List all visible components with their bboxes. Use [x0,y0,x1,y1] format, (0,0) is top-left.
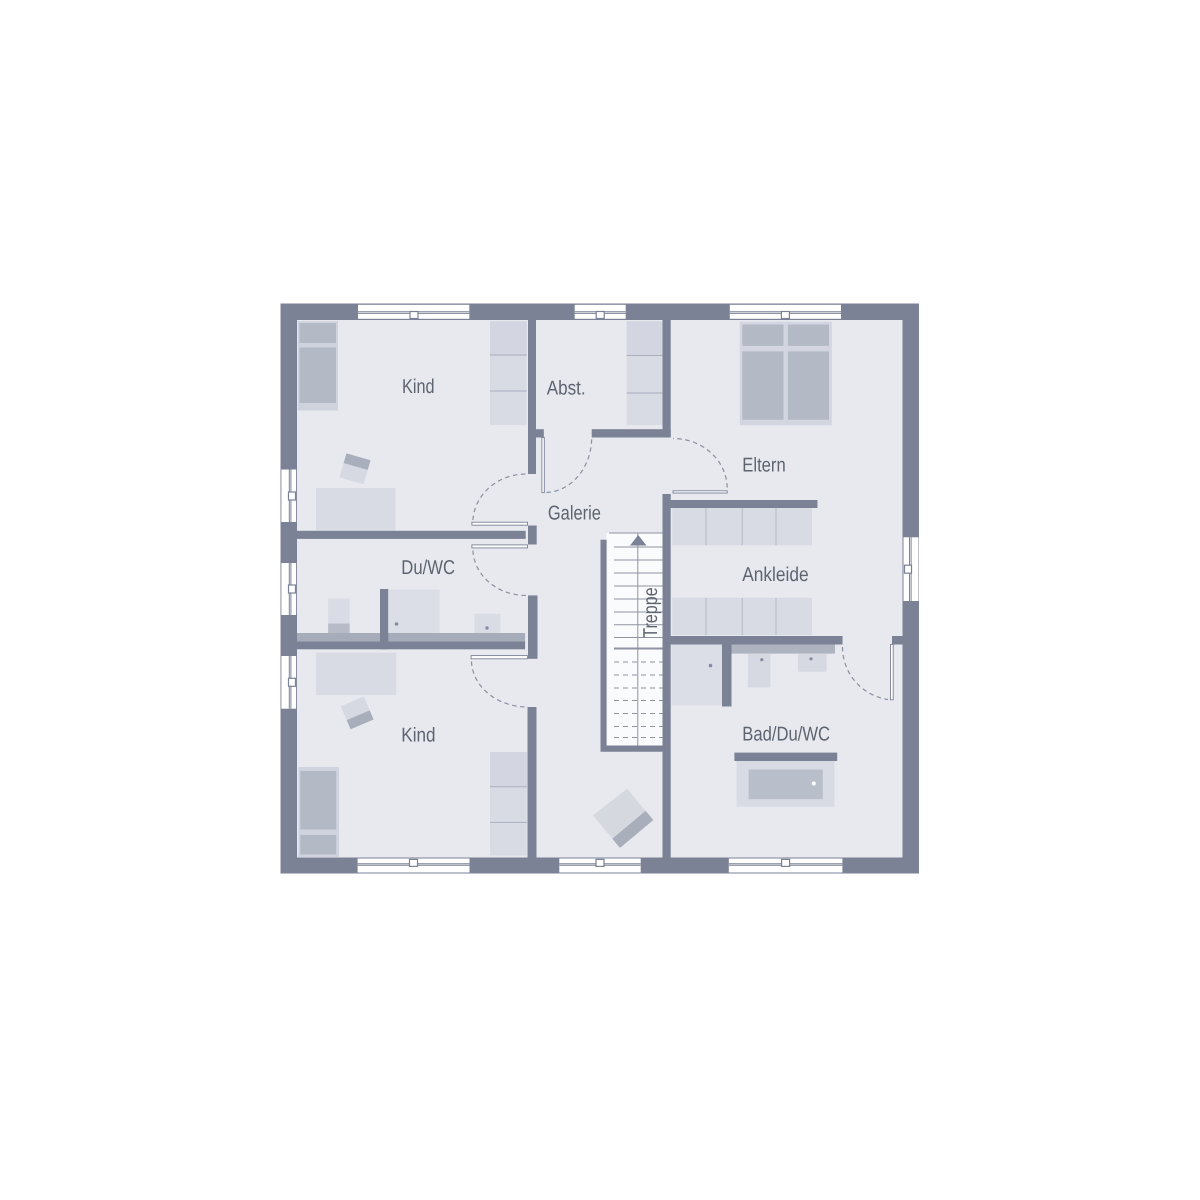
svg-text:Kind: Kind [401,725,435,747]
svg-text:Du/WC: Du/WC [401,557,455,579]
svg-text:Treppe: Treppe [640,587,662,638]
svg-text:Eltern: Eltern [742,454,785,476]
svg-text:Galerie: Galerie [548,503,601,525]
svg-text:Abst.: Abst. [547,377,586,399]
svg-text:Kind: Kind [402,376,435,398]
svg-text:Bad/Du/WC: Bad/Du/WC [742,723,830,745]
svg-text:Ankleide: Ankleide [742,564,808,586]
